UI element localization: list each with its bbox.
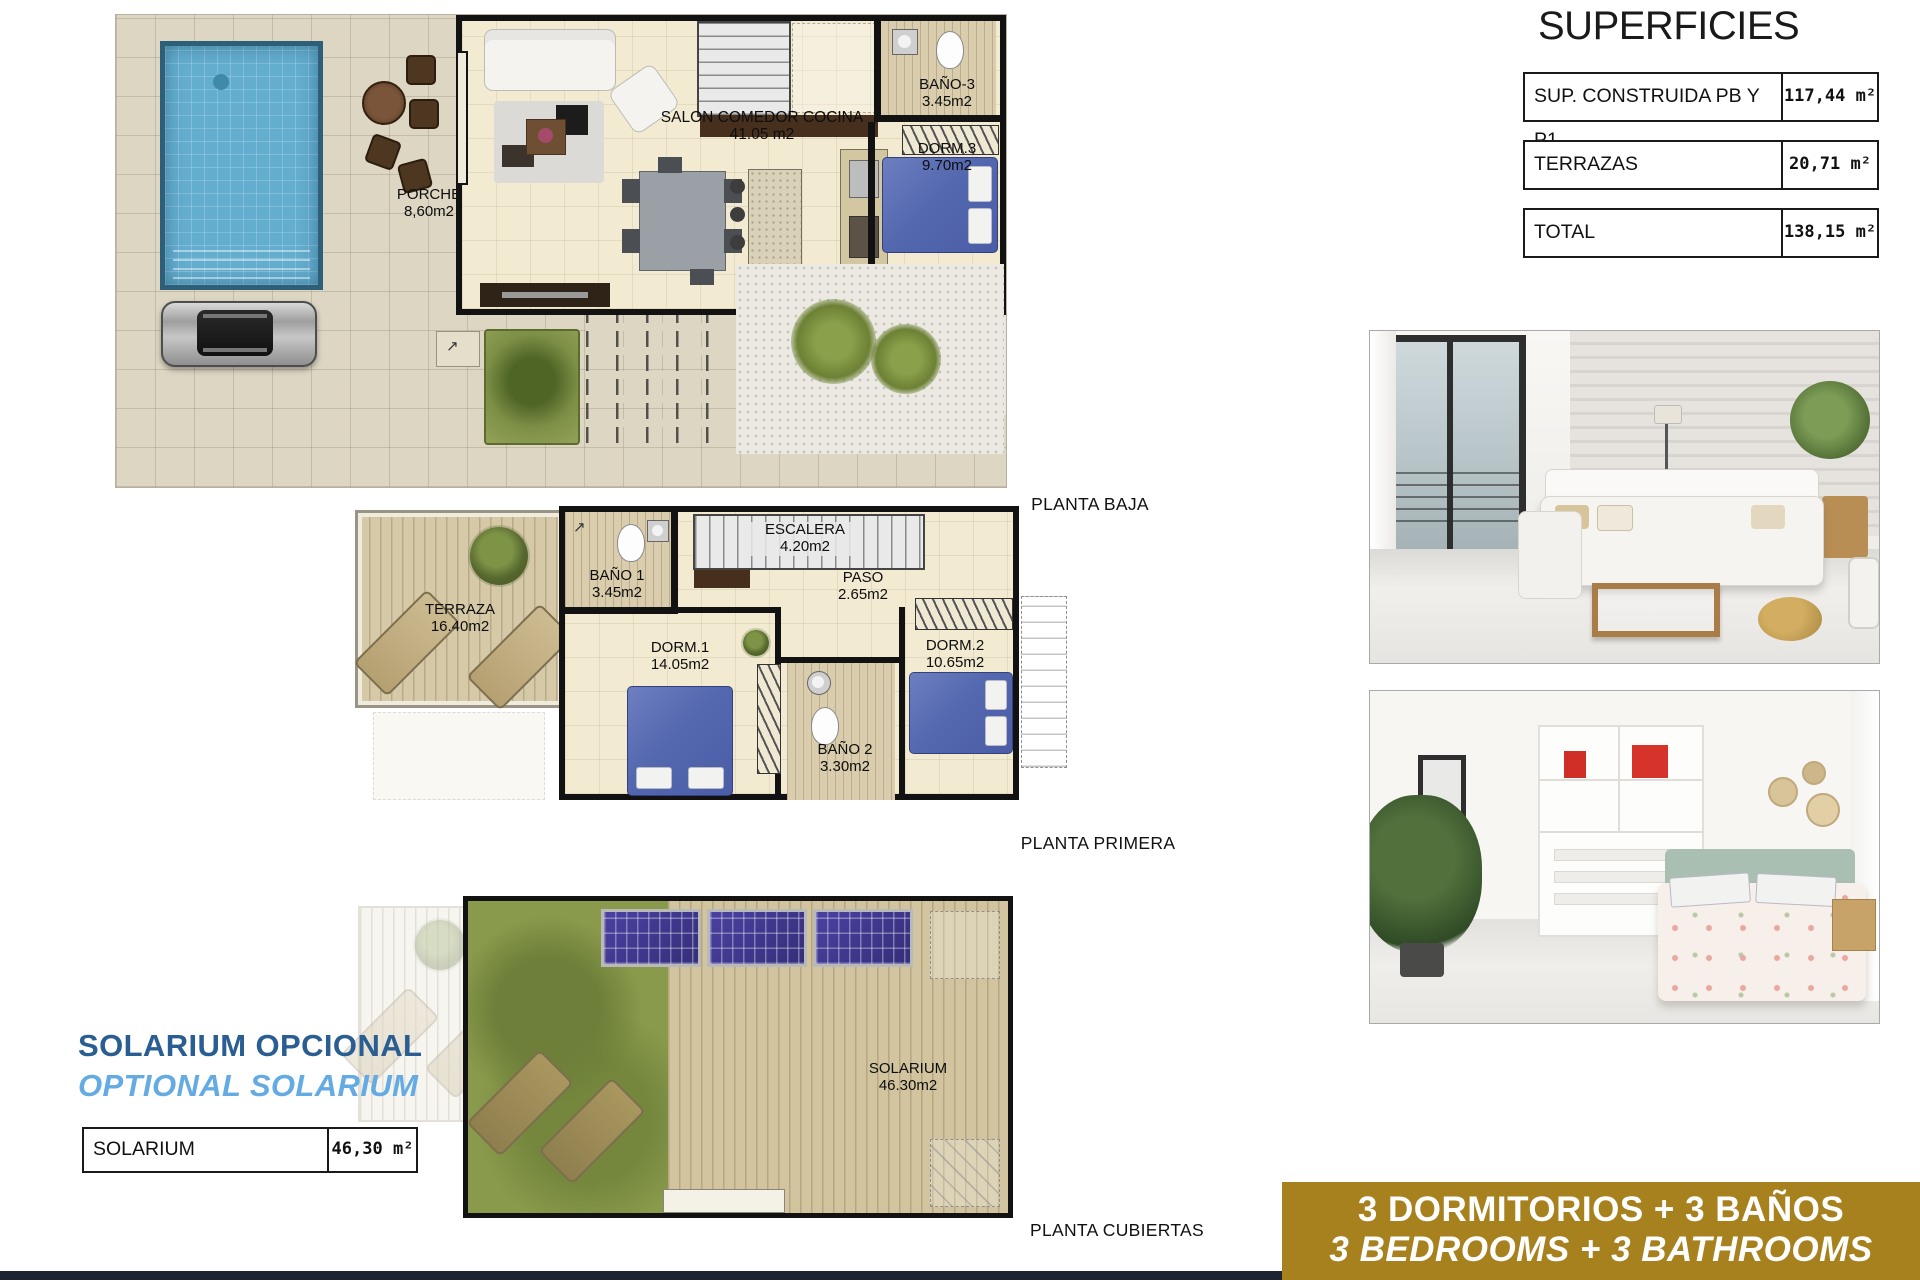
exterior-stair-ghost (930, 1139, 1000, 1207)
hall-cabinet (694, 570, 750, 588)
wall-decor (1768, 777, 1798, 807)
wall-decor (1806, 793, 1840, 827)
photo-living-room (1369, 330, 1880, 664)
porch-chair (409, 99, 439, 129)
car-roof (197, 310, 273, 356)
superficies-row: SUP. CONSTRUIDA PB Y P1 117,44 m² (1523, 72, 1879, 122)
chaise (1518, 511, 1582, 599)
solarium-table: SOLARIUM 46,30 m² (82, 1127, 418, 1173)
coffee-table (526, 119, 566, 155)
solar-panel (601, 909, 701, 967)
stair-bulkhead (663, 1189, 785, 1213)
room-label-escalera: ESCALERA 4.20m2 (750, 522, 860, 556)
summary-banner: 3 DORMITORIOS + 3 BAÑOS 3 BEDROOMS + 3 B… (1282, 1182, 1920, 1280)
plant-pot (1400, 943, 1444, 977)
brochure-page: PORCHE 8,60m2 (0, 0, 1920, 1280)
entry-arrow-icon: ↗ (573, 518, 586, 536)
red-bag (1632, 745, 1668, 778)
toilet (811, 707, 839, 745)
solarium-title-en: OPTIONAL SOLARIUM (78, 1068, 418, 1104)
wall-decor (1802, 761, 1826, 785)
coffee-table (1592, 583, 1720, 637)
porch-round-table (362, 81, 406, 125)
toilet (936, 31, 964, 69)
room-label-bano3: BAÑO-3 3.45m2 (892, 77, 1002, 111)
entry-arrow-icon: ↗ (446, 337, 459, 355)
sofa (1540, 496, 1824, 586)
gravel-garden (736, 264, 1004, 454)
bathroom-sink (647, 520, 669, 542)
terrace-lower-ghost (373, 712, 545, 800)
bed-dorm1 (627, 686, 733, 796)
swimming-pool (160, 41, 323, 290)
solar-panel (813, 909, 913, 967)
caption-planta-primera: PLANTA PRIMERA (1008, 833, 1188, 854)
sofa (484, 29, 616, 91)
room-label-solarium: SOLARIUM 46.30m2 (808, 1061, 1008, 1095)
superficies-row: TOTAL 138,15 m² (1523, 208, 1879, 258)
porch-chair (364, 133, 402, 171)
plant (1369, 795, 1482, 953)
room-label-salon: SALON COMEDOR COCINA 41.05 m2 (657, 109, 867, 144)
room-label-paso: PASO 2.65m2 (813, 570, 913, 604)
rug (494, 101, 604, 183)
exterior-stair-ghost (1021, 596, 1067, 768)
garden-patch (484, 329, 580, 445)
staircase (697, 21, 791, 117)
stair-landing (792, 23, 876, 113)
solar-panel (707, 909, 807, 967)
caption-planta-cubiertas: PLANTA CUBIERTAS (1017, 1220, 1217, 1241)
kitchen-counter (840, 149, 888, 281)
floorplan-planta-baja: PORCHE 8,60m2 (115, 14, 1007, 488)
banner-line-en: 3 BEDROOMS + 3 BATHROOMS (1282, 1230, 1920, 1270)
car (161, 301, 317, 367)
cushion (1597, 505, 1633, 531)
footer-strip (0, 1271, 1282, 1280)
bathroom-sink (892, 29, 918, 55)
terrace-plant (470, 527, 528, 585)
banner-line-es: 3 DORMITORIOS + 3 BAÑOS (1282, 1190, 1920, 1230)
basket (1848, 557, 1880, 629)
cushion (1751, 505, 1785, 529)
plant (1790, 381, 1870, 459)
wardrobe (915, 598, 1013, 630)
side-table (1822, 496, 1868, 558)
balcony-railing (1383, 472, 1519, 532)
bathroom-2 (787, 663, 895, 800)
floorplan-planta-cubiertas: SOLARIUM 46.30m2 (358, 896, 1014, 1218)
photo-bedroom (1369, 690, 1880, 1024)
roof-solarium: SOLARIUM 46.30m2 (463, 896, 1013, 1218)
room-label-dorm1: DORM.1 14.05m2 (605, 640, 755, 674)
solar-panel-array (601, 909, 913, 967)
dining-table (639, 171, 726, 271)
room-label-bano2: BAÑO 2 3.30m2 (790, 742, 900, 776)
tv-unit (480, 283, 610, 307)
pool-steps (173, 245, 310, 279)
plant (743, 630, 769, 656)
house-first-floor: ↗ ESCALERA 4.20m2 PASO 2.65m2 DORM.1 14.… (559, 506, 1019, 800)
superficies-row: TERRAZAS 20,71 m² (1523, 140, 1879, 190)
wardrobe (757, 664, 781, 774)
pool-drain (213, 74, 229, 90)
room-label-terraza: TERRAZA 16.40m2 (400, 602, 520, 636)
palm-tree (871, 324, 941, 394)
room-label-dorm3: DORM.3 9.70m2 (892, 141, 1002, 175)
nightstand (1832, 899, 1876, 951)
floorplan-planta-primera: TERRAZA 16.40m2 ↗ ESCALERA 4.20m2 PASO (355, 506, 1067, 806)
pouf (1758, 597, 1822, 641)
toilet (617, 524, 645, 562)
red-bag (1564, 751, 1586, 778)
room-label-bano1: BAÑO 1 3.45m2 (567, 568, 667, 602)
porch-chair (406, 55, 436, 85)
exterior-stair-ghost (930, 911, 1000, 979)
room-label-dorm2: DORM.2 10.65m2 (895, 638, 1015, 672)
bed-dorm2 (909, 672, 1013, 754)
superficies-title: SUPERFICIES (1538, 4, 1799, 49)
solarium-title-es: SOLARIUM OPCIONAL (78, 1028, 422, 1064)
bathroom-sink (807, 671, 831, 695)
window (456, 51, 468, 185)
palm-tree (791, 299, 876, 384)
